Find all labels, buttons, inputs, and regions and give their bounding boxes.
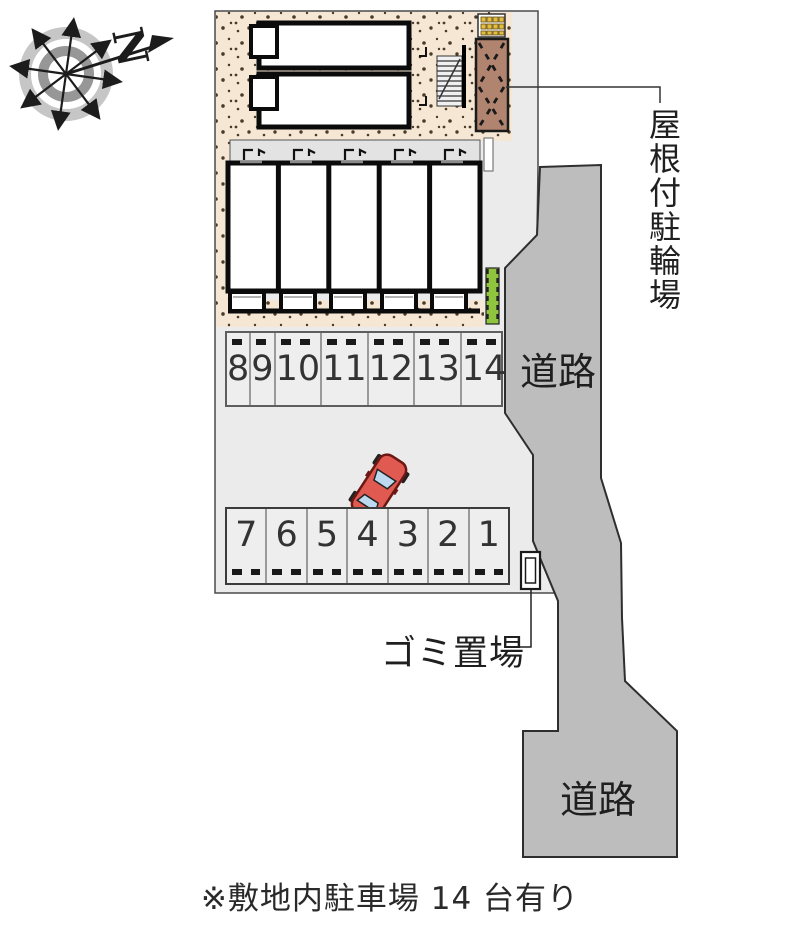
corridor	[230, 140, 480, 163]
parking-stall-6: 6	[265, 509, 305, 583]
parking-stall-4: 4	[346, 509, 386, 583]
parking-stall-7: 7	[227, 509, 265, 583]
parking-stall-8: 8	[227, 333, 249, 405]
parking-stall-14: 14	[460, 333, 507, 405]
parking-row-bottom: 7 6 5 4 3 2 1	[225, 507, 510, 585]
parking-stall-5: 5	[306, 509, 346, 583]
road-label-lower: 道路	[552, 769, 644, 824]
parking-stall-13: 13	[413, 333, 460, 405]
parking-stall-10: 10	[274, 333, 321, 405]
porches	[230, 292, 466, 311]
parking-row-top: 8 9 10 11 12 13 14	[225, 331, 503, 407]
parking-stall-9: 9	[249, 333, 273, 405]
parking-stall-3: 3	[387, 509, 427, 583]
garbage-box	[521, 552, 540, 589]
building-upper	[251, 23, 426, 127]
meter-box	[478, 14, 505, 37]
parking-stall-1: 1	[468, 509, 508, 583]
parking-stall-11: 11	[320, 333, 367, 405]
parking-count-note: ※敷地内駐車場 14 台有り	[0, 873, 780, 918]
garbage-label: ゴミ置場	[381, 625, 525, 676]
north-label: N	[102, 23, 158, 71]
wall-column	[484, 138, 493, 171]
hedge	[486, 268, 499, 324]
compass: N	[14, 22, 175, 127]
bicycle-shed	[476, 39, 508, 131]
building-units	[228, 150, 480, 311]
bicycle-parking-label: 屋根付駐輪場	[642, 108, 682, 328]
parking-stall-2: 2	[427, 509, 467, 583]
road-label-upper: 道路	[512, 341, 604, 396]
parking-stall-12: 12	[367, 333, 414, 405]
site-plan: N 8 9 10 11 12 13 14 7 6 5 4 3 2 1 屋根付駐輪…	[0, 0, 800, 942]
